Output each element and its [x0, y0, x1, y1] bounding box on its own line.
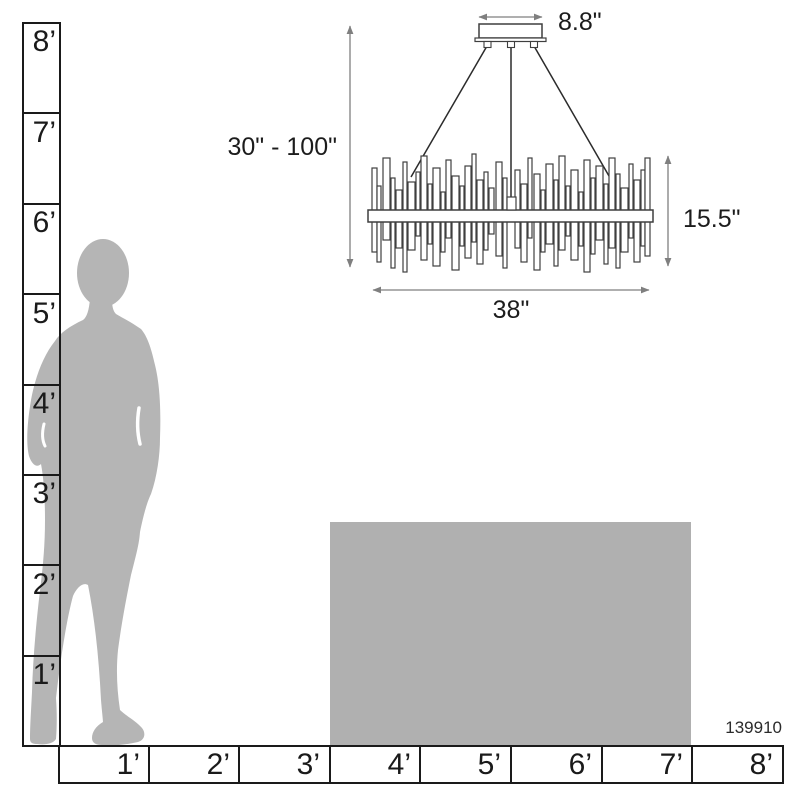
vertical-ruler-label-3ft: 3’ — [22, 479, 56, 509]
person-head — [77, 239, 129, 307]
crystal-rod — [452, 176, 459, 270]
chandelier-fixture — [368, 24, 653, 272]
crystal-rod — [596, 166, 603, 240]
cable-nub-right — [531, 42, 538, 48]
horizontal-ruler-label-8ft: 8’ — [692, 746, 773, 783]
vertical-ruler-label-8ft: 8’ — [22, 27, 56, 57]
horizontal-ruler-label-2ft: 2’ — [149, 746, 230, 783]
vertical-ruler-label-5ft: 5’ — [22, 299, 56, 329]
crystal-rod — [521, 184, 527, 262]
furniture-block — [330, 522, 691, 746]
vertical-ruler-label-7ft: 7’ — [22, 118, 56, 148]
suspension-cables — [411, 46, 609, 198]
crystal-rod — [472, 154, 476, 242]
vertical-ruler-label-4ft: 4’ — [22, 389, 56, 419]
fixture-height-label: 15.5" — [683, 207, 741, 232]
crystal-rod — [629, 164, 633, 238]
cable-nub-center — [508, 42, 515, 48]
stem-connector — [507, 197, 516, 210]
crystal-rod — [546, 164, 553, 244]
chandelier-band — [368, 210, 653, 222]
horizontal-ruler-label-5ft: 5’ — [420, 746, 501, 783]
crystal-rod — [496, 162, 502, 256]
product-number: 139910 — [662, 719, 782, 736]
crystal-rod — [503, 178, 507, 268]
crystal-rod — [559, 156, 565, 250]
crystal-rod — [446, 160, 451, 238]
ceiling-canopy — [479, 24, 542, 38]
scale-diagram-graphics — [0, 0, 800, 800]
horizontal-ruler-label-6ft: 6’ — [511, 746, 592, 783]
crystal-rod — [383, 158, 390, 240]
vertical-ruler-label-1ft: 1’ — [22, 660, 56, 690]
canopy-width-label: 8.8" — [558, 10, 602, 35]
crystal-rod — [416, 172, 420, 236]
crystal-rod — [609, 158, 615, 248]
cable-nub-left — [484, 42, 491, 48]
scale-diagram-canvas: 8’ 7’ 6’ 5’ 4’ 3’ 2’ 1’ 1’ 2’ 3’ 4’ 5’ 6… — [0, 0, 800, 800]
crystal-rod — [604, 184, 608, 264]
horizontal-ruler-label-7ft: 7’ — [602, 746, 683, 783]
crystal-rod — [421, 156, 427, 260]
fixture-width-label: 38" — [461, 298, 561, 323]
crystal-rod — [645, 158, 650, 256]
hanging-height-label: 30" - 100" — [180, 135, 337, 160]
crystal-rod — [554, 180, 558, 266]
crystal-rod — [528, 158, 532, 238]
vertical-ruler-label-2ft: 2’ — [22, 570, 56, 600]
horizontal-ruler-label-4ft: 4’ — [330, 746, 411, 783]
horizontal-ruler-label-1ft: 1’ — [59, 746, 140, 783]
horizontal-ruler-label-3ft: 3’ — [239, 746, 320, 783]
vertical-ruler-label-6ft: 6’ — [22, 208, 56, 238]
crystal-rod — [377, 186, 381, 262]
crystal-rod — [391, 178, 395, 268]
